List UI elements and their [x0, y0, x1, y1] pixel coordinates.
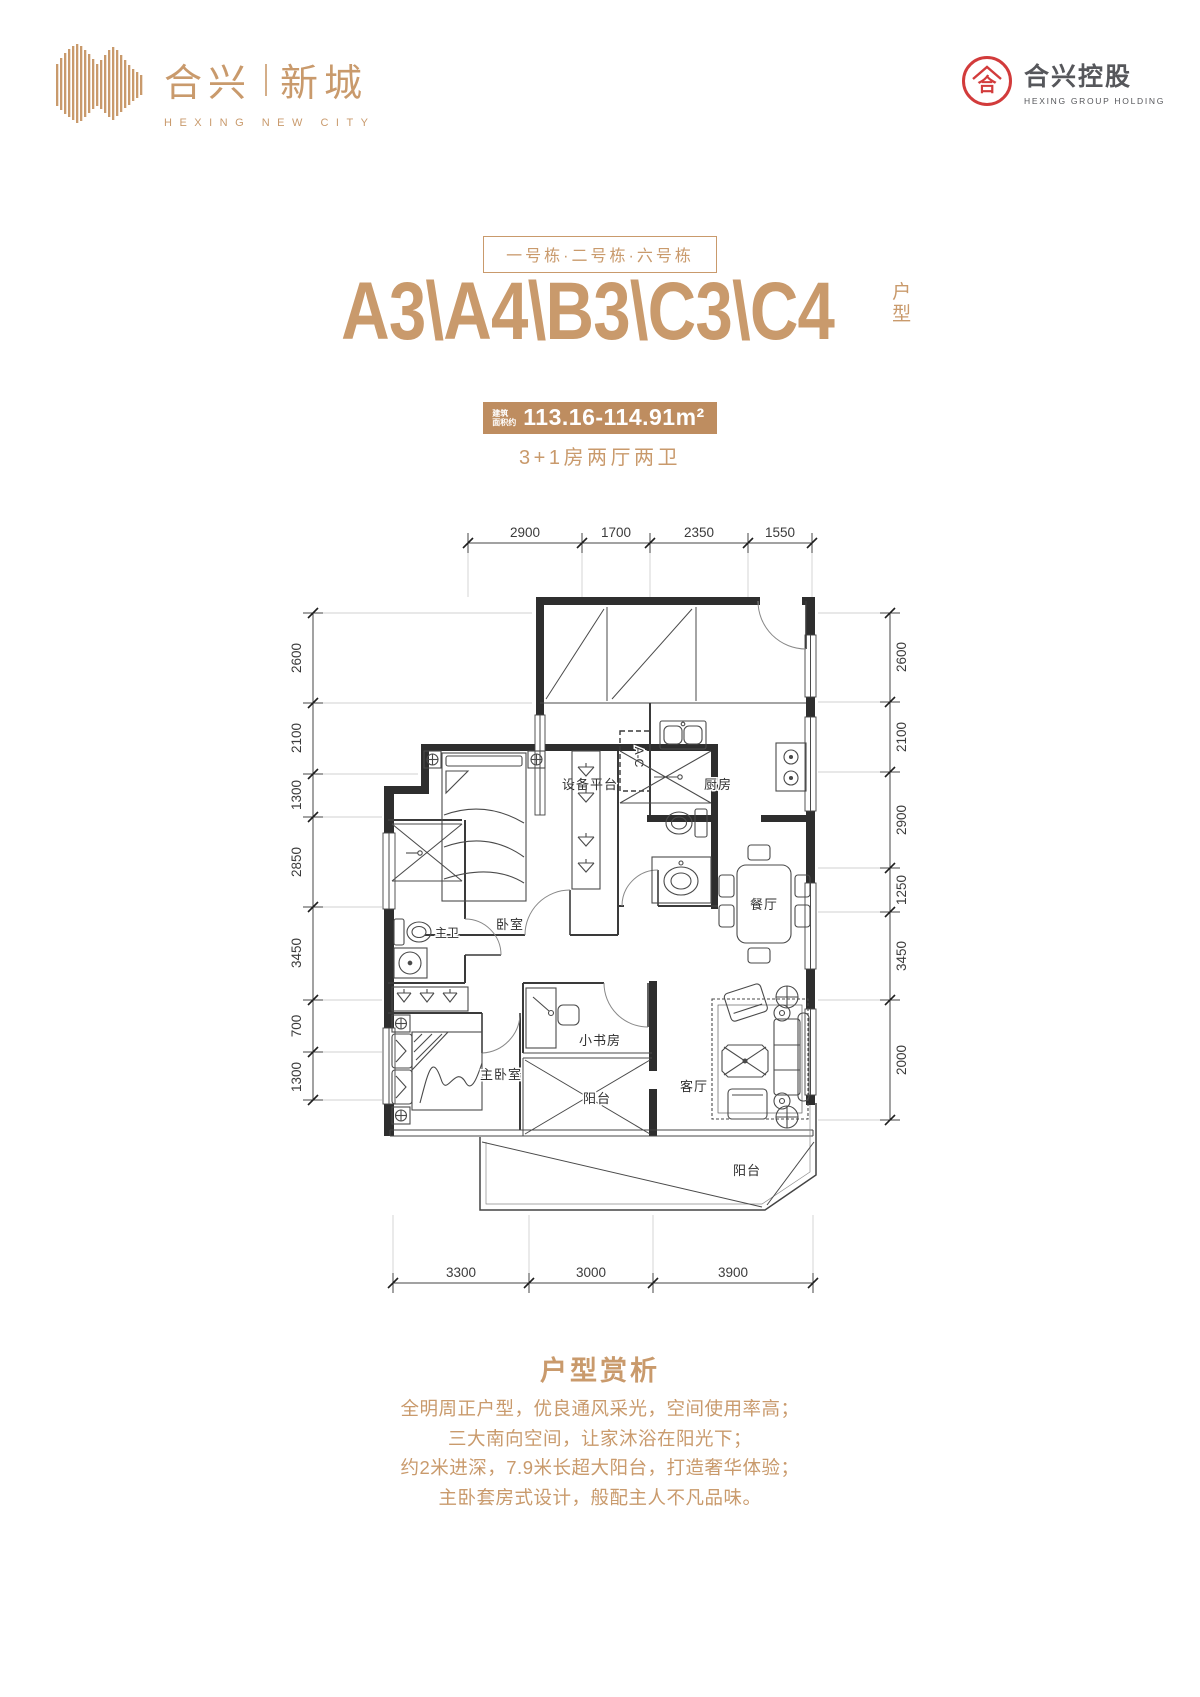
svg-text:3300: 3300	[446, 1265, 476, 1280]
master-bedroom-label: 主卧室	[480, 1067, 522, 1082]
corporate-logo: 合 合兴控股 HEXING GROUP HOLDING	[960, 54, 1165, 108]
dimension-left: 2600 2100 1300 2850 3450 700 1300	[289, 608, 323, 1105]
bedroom-wardrobe	[572, 751, 600, 889]
hall-closet	[392, 987, 468, 1011]
analysis-line: 主卧套房式设计，般配主人不凡品味。	[0, 1483, 1200, 1513]
svg-text:2350: 2350	[684, 525, 714, 540]
svg-text:3450: 3450	[289, 938, 304, 968]
brand-wordmark: 合兴 新城 HEXING NEW CITY	[164, 42, 376, 129]
analysis-line: 全明周正户型，优良通风采光，空间使用率高；	[0, 1394, 1200, 1424]
unit-types-title: A3\A4\B3\C3\C4	[341, 270, 834, 354]
area-prefix: 建筑 面积约	[492, 409, 516, 427]
area-value: 113.16-114.91m²	[523, 404, 704, 431]
corporate-name-en: HEXING GROUP HOLDING	[1024, 96, 1165, 106]
balcony-main	[480, 1103, 816, 1210]
bathroom-2	[620, 751, 711, 903]
kitchen-label: 厨房	[704, 777, 732, 792]
svg-text:2100: 2100	[894, 722, 909, 752]
brochure-page: 合兴 新城 HEXING NEW CITY 合 合兴控股 HEXING GROU…	[0, 0, 1200, 1697]
interior-walls	[388, 703, 806, 1136]
svg-text:1250: 1250	[894, 875, 909, 905]
living-furniture	[712, 983, 809, 1128]
svg-text:1300: 1300	[289, 780, 304, 810]
svg-text:2900: 2900	[894, 805, 909, 835]
bedroom-furniture	[424, 751, 545, 901]
bedroom-label: 卧室	[496, 917, 524, 932]
area-badge: 建筑 面积约 113.16-114.91m²	[483, 402, 716, 434]
door-swings	[465, 601, 806, 1053]
svg-text:2600: 2600	[894, 642, 909, 672]
corporate-name: 合兴控股	[1024, 57, 1165, 93]
brand-name-en: HEXING NEW CITY	[164, 117, 376, 129]
roof-bays	[546, 607, 696, 701]
svg-text:1300: 1300	[289, 1062, 304, 1092]
title-row: A3\A4\B3\C3\C4 户型	[0, 270, 1200, 354]
analysis-line: 三大南向空间，让家沐浴在阳光下；	[0, 1424, 1200, 1454]
dimension-top: 2900 1700 2350 1550	[463, 525, 817, 553]
equipment-label: 设备平台	[562, 777, 618, 792]
area-row: 建筑 面积约 113.16-114.91m²	[0, 402, 1200, 434]
svg-text:2600: 2600	[289, 643, 304, 673]
svg-text:2900: 2900	[510, 525, 540, 540]
south-rail	[390, 1130, 813, 1136]
dimension-right: 2600 2100 2900 1250 3450 2000	[880, 608, 909, 1125]
brand-bars-icon	[56, 42, 148, 128]
svg-text:1700: 1700	[601, 525, 631, 540]
svg-text:3450: 3450	[894, 941, 909, 971]
brand-divider	[265, 64, 267, 96]
svg-text:1550: 1550	[765, 525, 795, 540]
brand-name-right: 新城	[280, 52, 368, 107]
dining-label: 餐厅	[750, 897, 778, 912]
svg-text:2850: 2850	[289, 847, 304, 877]
master-bath-label: 主卫	[435, 926, 459, 940]
svg-text:2000: 2000	[894, 1045, 909, 1075]
dimension-bottom: 3300 3000 3900	[388, 1265, 818, 1293]
brand-name-left: 合兴	[164, 52, 252, 107]
balcony-main-label: 阳台	[733, 1163, 761, 1178]
kitchen-stove	[776, 743, 806, 791]
analysis-text: 全明周正户型，优良通风采光，空间使用率高； 三大南向空间，让家沐浴在阳光下； 约…	[0, 1394, 1200, 1512]
corporate-wordmark: 合兴控股 HEXING GROUP HOLDING	[1024, 57, 1165, 106]
brand-logo: 合兴 新城 HEXING NEW CITY	[56, 42, 376, 129]
svg-text:700: 700	[289, 1015, 304, 1038]
analysis-heading: 户型赏析	[0, 1349, 1200, 1388]
floor-plan: 2900 1700 2350 1550 2600 2100 1300 2850 …	[270, 485, 960, 1315]
corporate-mark-glyph: 合	[977, 73, 997, 96]
study-label: 小书房	[579, 1033, 621, 1048]
corporate-seal-icon: 合	[960, 54, 1014, 108]
title-tag-vertical: 户型	[891, 282, 913, 326]
master-bedroom-furniture	[392, 1015, 482, 1124]
balcony-mid-label: 阳台	[583, 1091, 611, 1106]
svg-text:3000: 3000	[576, 1265, 606, 1280]
svg-text:2100: 2100	[289, 723, 304, 753]
living-label: 客厅	[680, 1079, 708, 1094]
study-furniture	[526, 988, 579, 1048]
svg-text:3900: 3900	[718, 1265, 748, 1280]
ac-unit: A-C	[620, 731, 650, 791]
analysis-line: 约2米进深，7.9米长超大阳台，打造奢华体验；	[0, 1453, 1200, 1483]
layout-subtitle: 3+1房两厅两卫	[0, 441, 1200, 470]
